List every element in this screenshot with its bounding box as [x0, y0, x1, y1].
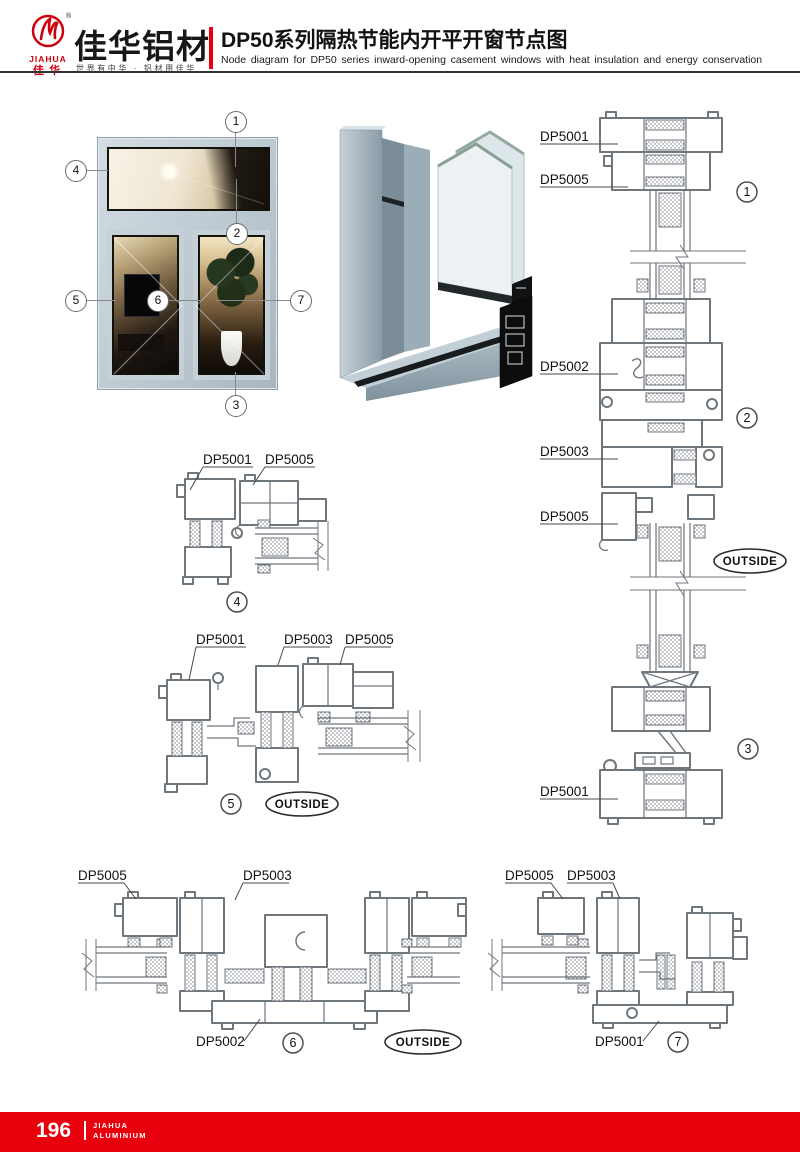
label-dp5005-top: DP5005: [540, 172, 589, 187]
callout-line-7: [216, 300, 290, 301]
photo-reflection-lines: [98, 138, 279, 391]
company-name: 佳华铝材: [74, 20, 210, 68]
footer-divider: [84, 1121, 86, 1140]
callout-line-6: [169, 300, 204, 301]
detail-4-drawing: DP5001 DP5005 4: [150, 443, 335, 618]
callout-line-3: [235, 372, 236, 395]
window-photo: [97, 137, 278, 390]
label-dp5005-mid: DP5005: [540, 509, 589, 524]
detail-5-drawing: DP5001 DP5003 DP5005 5 OUTSIDE: [138, 626, 433, 821]
callout-7: 7: [290, 290, 312, 312]
label-d5-dp5001: DP5001: [196, 632, 245, 647]
detail-7-drawing: DP5005 DP5003 DP5001 7: [470, 855, 800, 1060]
page-number: 196: [36, 1119, 71, 1143]
detail-number-1: 1: [744, 185, 751, 199]
label-d6-dp5003: DP5003: [243, 868, 292, 883]
detail-6-drawing: DP5005 DP5003 DP5002 6 OUTSIDE: [62, 855, 467, 1060]
render-glass: [438, 132, 524, 304]
label-d7-dp5003: DP5003: [567, 868, 616, 883]
label-dp5001-bottom: DP5001: [540, 784, 589, 799]
detail-6-break: [82, 939, 96, 991]
detail-number-3: 3: [745, 742, 752, 756]
callout-5: 5: [65, 290, 87, 312]
page-subtitle: Node diagram for DP50 series inward-open…: [221, 54, 762, 66]
label-d6-dp5002: DP5002: [196, 1034, 245, 1049]
logo-brand-cn: 佳华: [22, 62, 76, 78]
label-d5-dp5005: DP5005: [345, 632, 394, 647]
header-divider: [0, 71, 800, 73]
label-d4-dp5001: DP5001: [203, 452, 252, 467]
label-dp5003: DP5003: [540, 444, 589, 459]
outside-tag-d6: OUTSIDE: [396, 1037, 451, 1049]
label-d5-dp5003: DP5003: [284, 632, 333, 647]
outside-tag-right-col: OUTSIDE: [723, 556, 778, 568]
detail-number-5: 5: [228, 797, 235, 811]
detail-number-7: 7: [675, 1035, 682, 1049]
footer-brand-line1: JIAHUA: [93, 1121, 128, 1130]
registered-mark: ®: [66, 12, 72, 20]
callout-6: 6: [147, 290, 169, 312]
callout-2: 2: [226, 223, 248, 245]
callout-3: 3: [225, 395, 247, 417]
callout-1: 1: [225, 111, 247, 133]
label-dp5001-top: DP5001: [540, 129, 589, 144]
detail-number-4: 4: [234, 595, 241, 609]
callout-4: 4: [65, 160, 87, 182]
profile-3d-render: [328, 126, 538, 401]
catalog-page: ® JIAHUA 佳华 佳华铝材 世界有中华 · 铝材用佳华 DP50系列隔热节…: [0, 0, 800, 1167]
jiahua-logo-icon: ®: [26, 8, 74, 56]
label-dp5002: DP5002: [540, 359, 589, 374]
detail-7-break: [488, 939, 502, 991]
callout-line-4: [87, 170, 108, 171]
label-d7-dp5001: DP5001: [595, 1034, 644, 1049]
footer-brand-line2: ALUMINIUM: [93, 1131, 147, 1140]
detail-number-2: 2: [744, 411, 751, 425]
outside-tag-d5: OUTSIDE: [275, 799, 330, 811]
callout-line-1: [235, 133, 236, 167]
callout-line-5: [87, 300, 116, 301]
title-accent-bar: [209, 27, 213, 69]
label-d4-dp5005: DP5005: [265, 452, 314, 467]
detail-markers: 1 2 3 OUTSIDE: [714, 182, 786, 759]
detail-number-6: 6: [290, 1036, 297, 1050]
label-d7-dp5005: DP5005: [505, 868, 554, 883]
vertical-section-drawing: DP5001 DP5005 DP5002 DP5003 DP5005 DP500…: [538, 103, 800, 825]
callout-line-2: [236, 179, 237, 223]
label-d6-dp5005: DP5005: [78, 868, 127, 883]
page-title: DP50系列隔热节能内开平开窗节点图: [221, 24, 568, 54]
